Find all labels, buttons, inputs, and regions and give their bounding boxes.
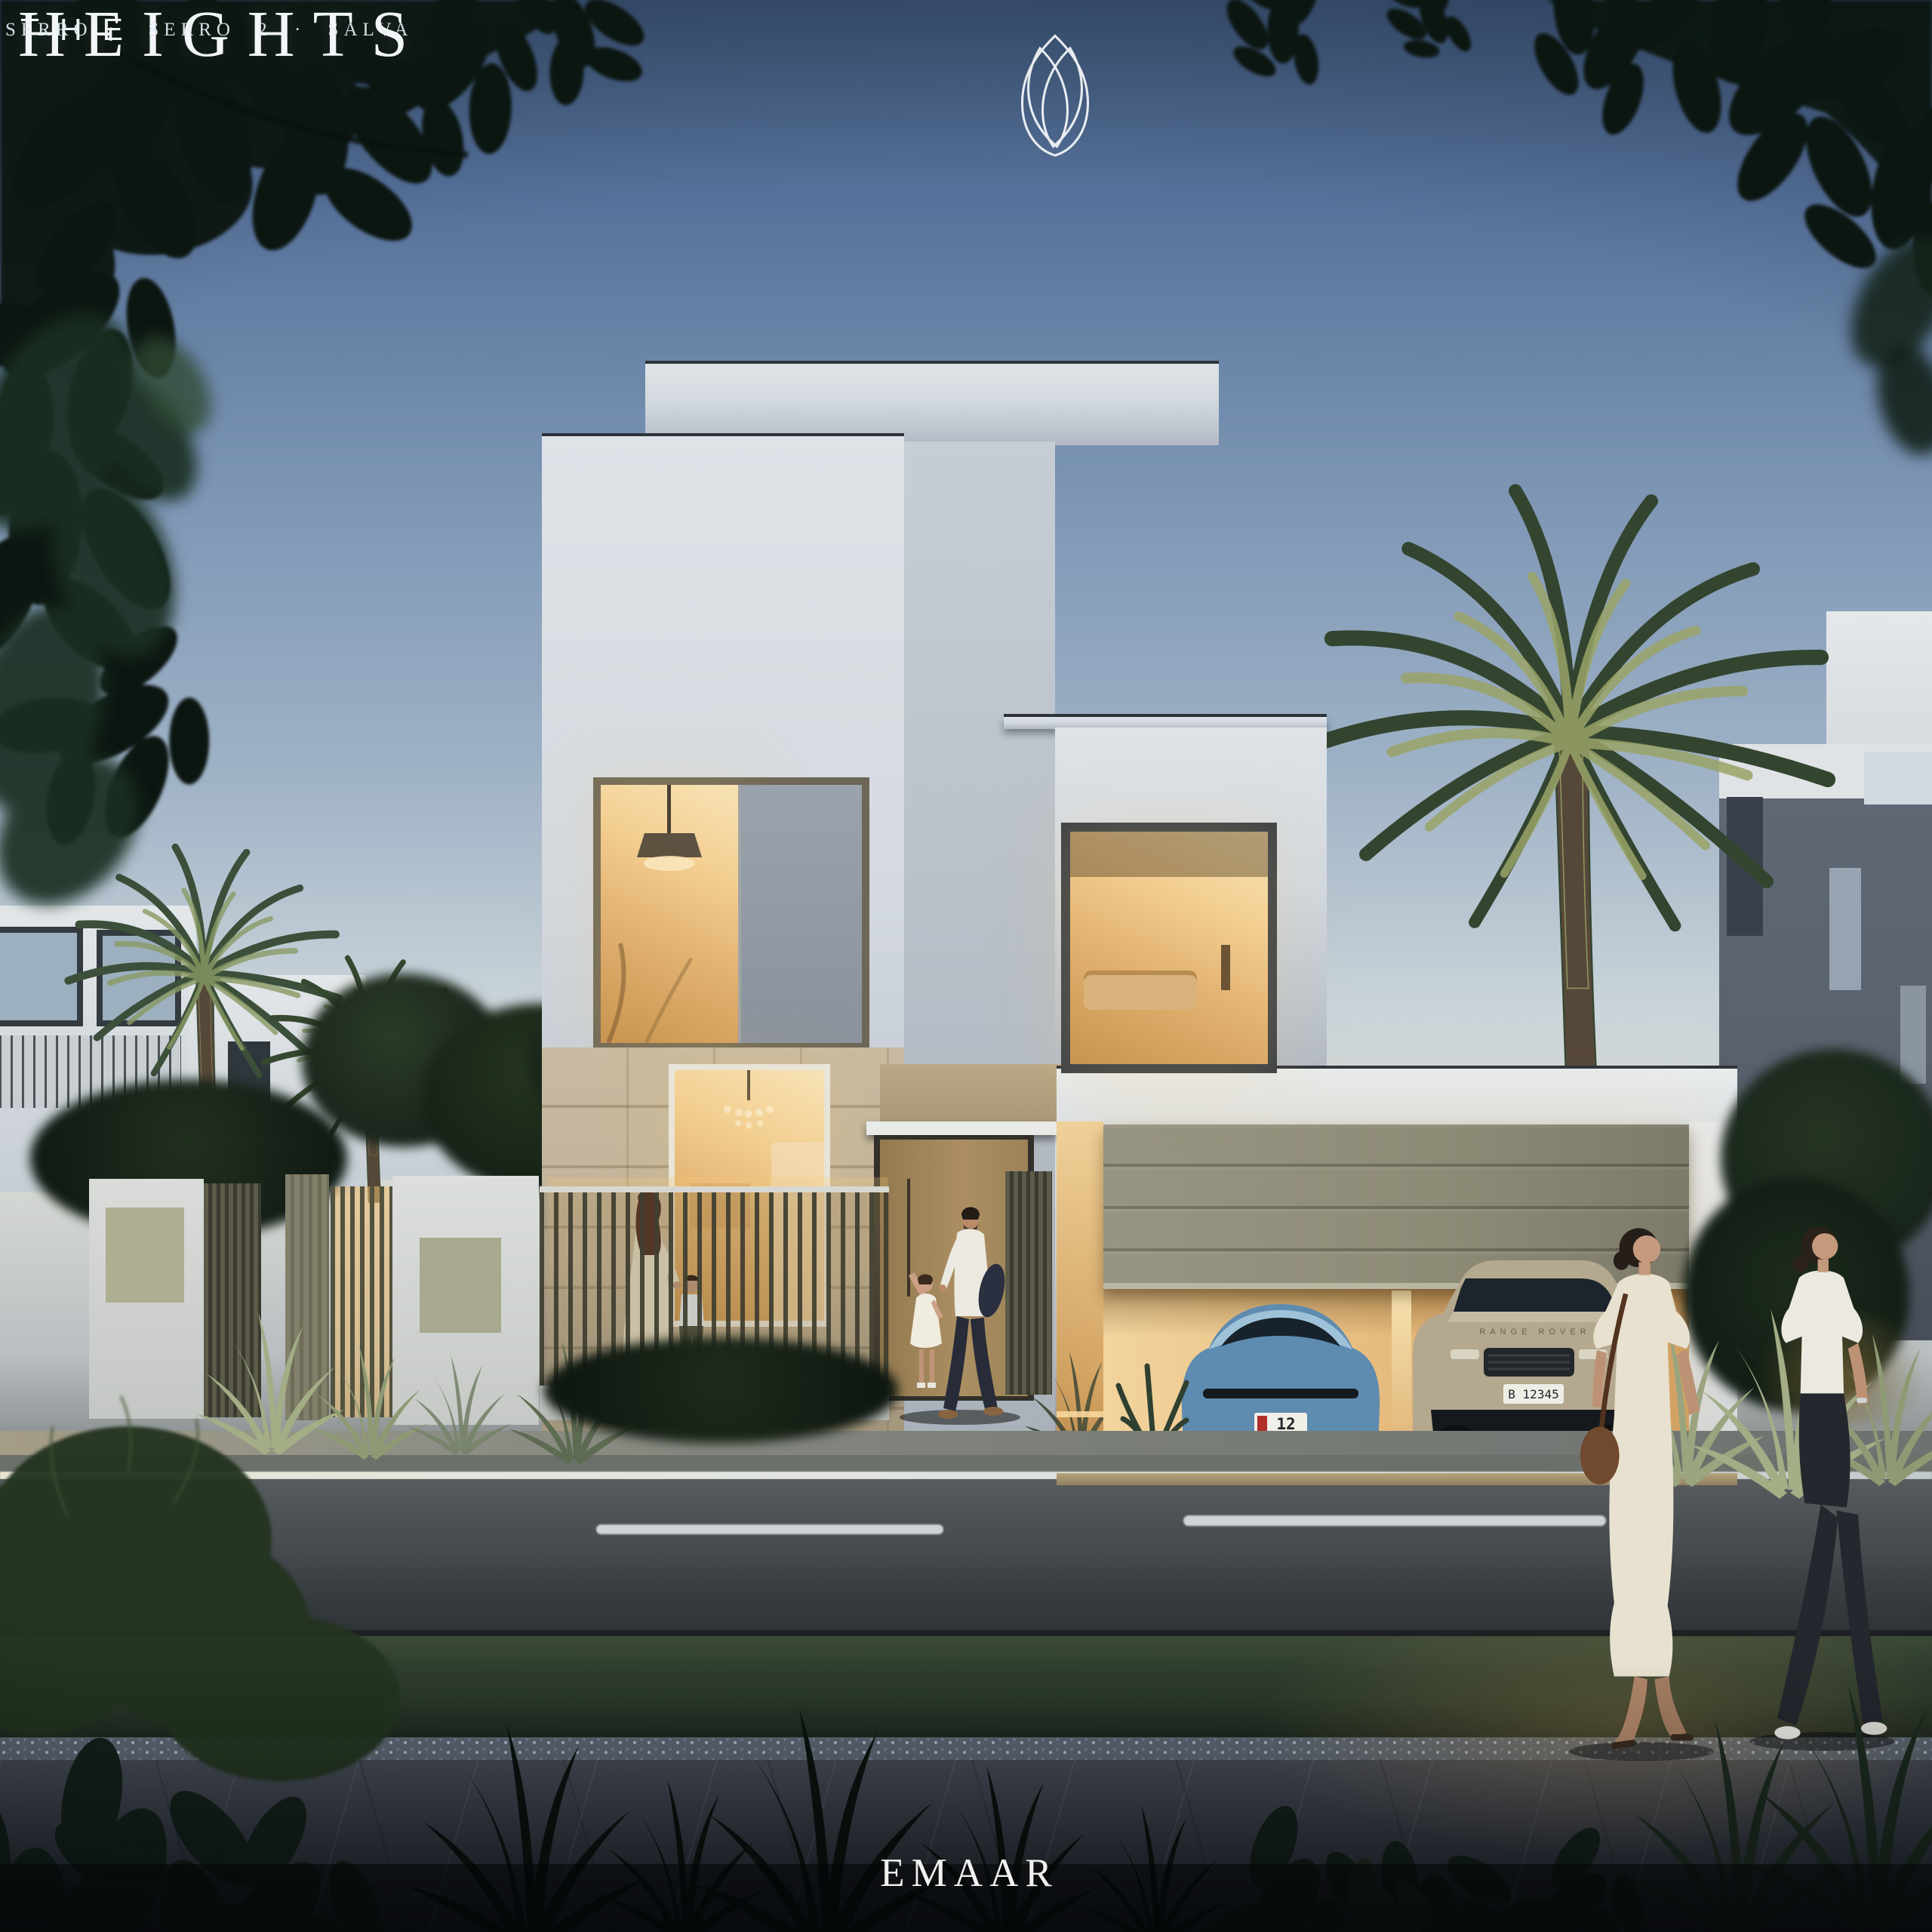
poster-canvas: 12 RANGE ROVER B 12345: [0, 0, 1932, 1932]
planter-shrubs: [543, 1337, 898, 1443]
woman-cream-dress: [1580, 1228, 1700, 1749]
entry-beige-band: [880, 1064, 1064, 1128]
communities-line: SERRO · SERRO 2 · SALVA: [0, 20, 413, 41]
foreground-plants: [0, 1721, 1932, 1932]
lane-dash: [596, 1524, 943, 1534]
developer-wordmark: EMAAR: [0, 1850, 1932, 1896]
daughter: [909, 1272, 943, 1388]
two-women-walking: [1524, 1201, 1932, 1764]
garage-fascia-top: [1057, 1069, 1737, 1124]
fence-top-rail: [540, 1186, 889, 1192]
window-interior-lamp: [1221, 945, 1230, 990]
entry-canopy: [866, 1121, 1057, 1135]
father: [938, 1207, 1009, 1420]
wall-sage-panel: [106, 1207, 184, 1303]
woman-white-blouse: [1774, 1226, 1887, 1739]
window-interior-sofa: [1084, 975, 1197, 1010]
blurred-leaf-right-edge: [1841, 226, 1932, 453]
heights-logo-icon: [966, 33, 1055, 166]
blurred-foreground-leaves-left: [0, 317, 272, 891]
villa-window: [1900, 986, 1926, 1084]
open-entry-gate-panel: [1005, 1171, 1052, 1395]
